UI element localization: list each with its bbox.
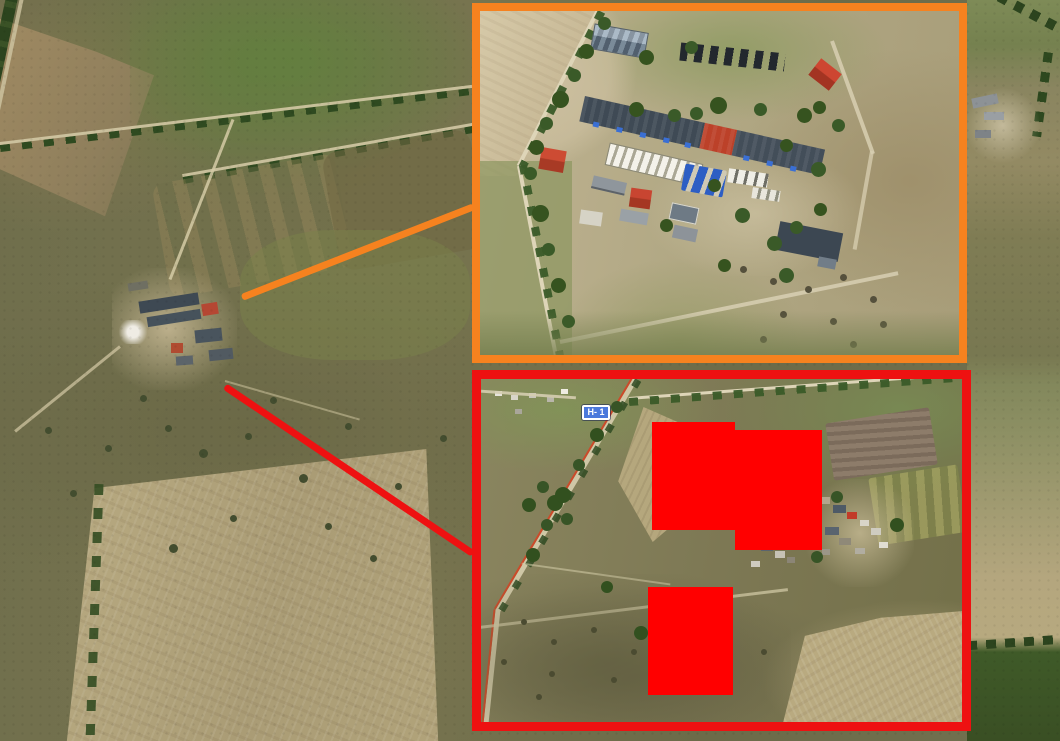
blue-door — [639, 132, 646, 138]
blue-door — [663, 137, 670, 143]
red-roof-building — [538, 147, 566, 173]
blue-door — [790, 166, 797, 172]
blue-door — [593, 122, 600, 128]
blue-door — [684, 142, 691, 148]
building — [579, 210, 603, 227]
blue-door — [743, 155, 750, 161]
building — [591, 175, 627, 195]
grass-field — [480, 311, 959, 355]
truck-row — [679, 43, 785, 72]
ground-marks — [740, 266, 747, 273]
trees — [598, 17, 611, 30]
blue-door — [766, 160, 773, 166]
red-inset-redacted-view: Н- 1 — [472, 370, 971, 731]
redaction-box — [648, 587, 733, 695]
orange-inset-closeup — [472, 3, 967, 363]
dirt-road — [830, 40, 875, 154]
red-roof-building — [629, 188, 652, 210]
redaction-box — [735, 430, 822, 550]
redaction-layer — [481, 379, 962, 722]
building — [619, 209, 649, 226]
orange-inset-scene — [480, 11, 959, 355]
redaction-box — [652, 422, 735, 530]
red-inset-scene: Н- 1 — [481, 379, 962, 722]
red-roof-building — [808, 58, 841, 91]
blue-door — [616, 127, 623, 133]
blue-panel-building — [590, 23, 649, 58]
annotated-satellite-image: Н- 1 — [0, 0, 1060, 741]
